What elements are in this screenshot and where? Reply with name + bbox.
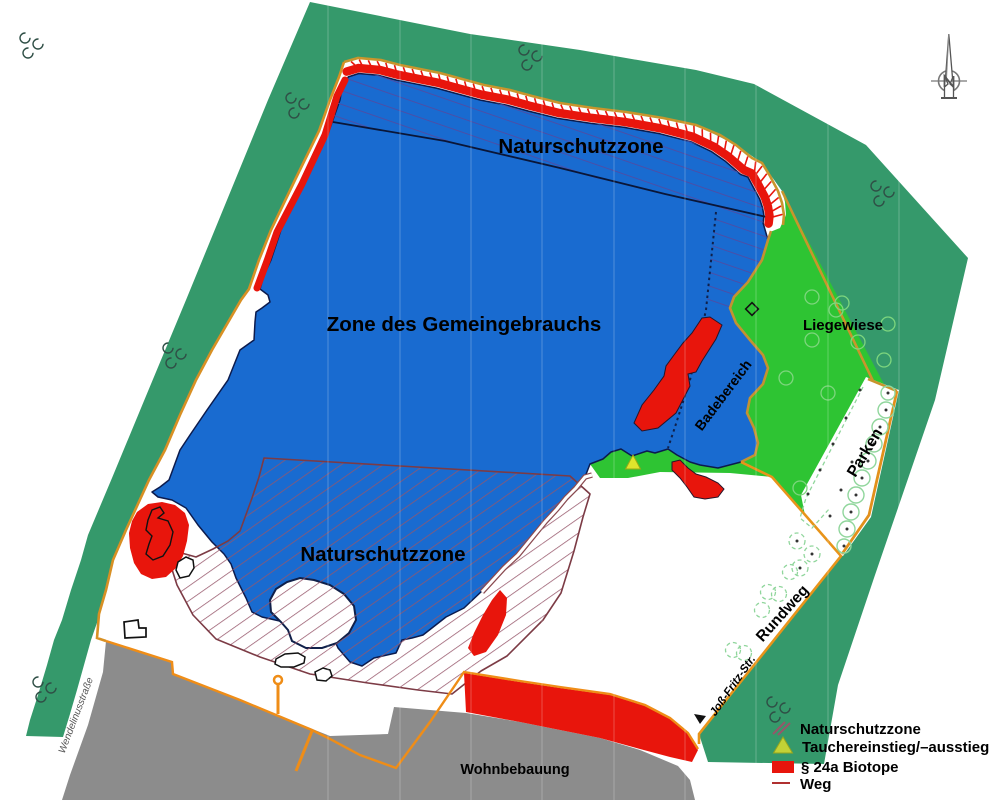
svg-text:Weg: Weg: [800, 776, 831, 793]
svg-text:Zone des Gemeingebrauchs: Zone des Gemeingebrauchs: [327, 313, 602, 336]
svg-text:Naturschutzzone: Naturschutzzone: [800, 721, 921, 738]
svg-text:Liegewiese: Liegewiese: [803, 317, 883, 334]
svg-text:Wohnbebauung: Wohnbebauung: [460, 762, 569, 778]
svg-text:Tauchereinstieg/–ausstieg: Tauchereinstieg/–ausstieg: [802, 739, 989, 756]
svg-text:Naturschutzzone: Naturschutzzone: [498, 135, 663, 158]
svg-text:§ 24a Biotope: § 24a Biotope: [801, 759, 899, 776]
svg-text:Naturschutzzone: Naturschutzzone: [300, 543, 465, 566]
